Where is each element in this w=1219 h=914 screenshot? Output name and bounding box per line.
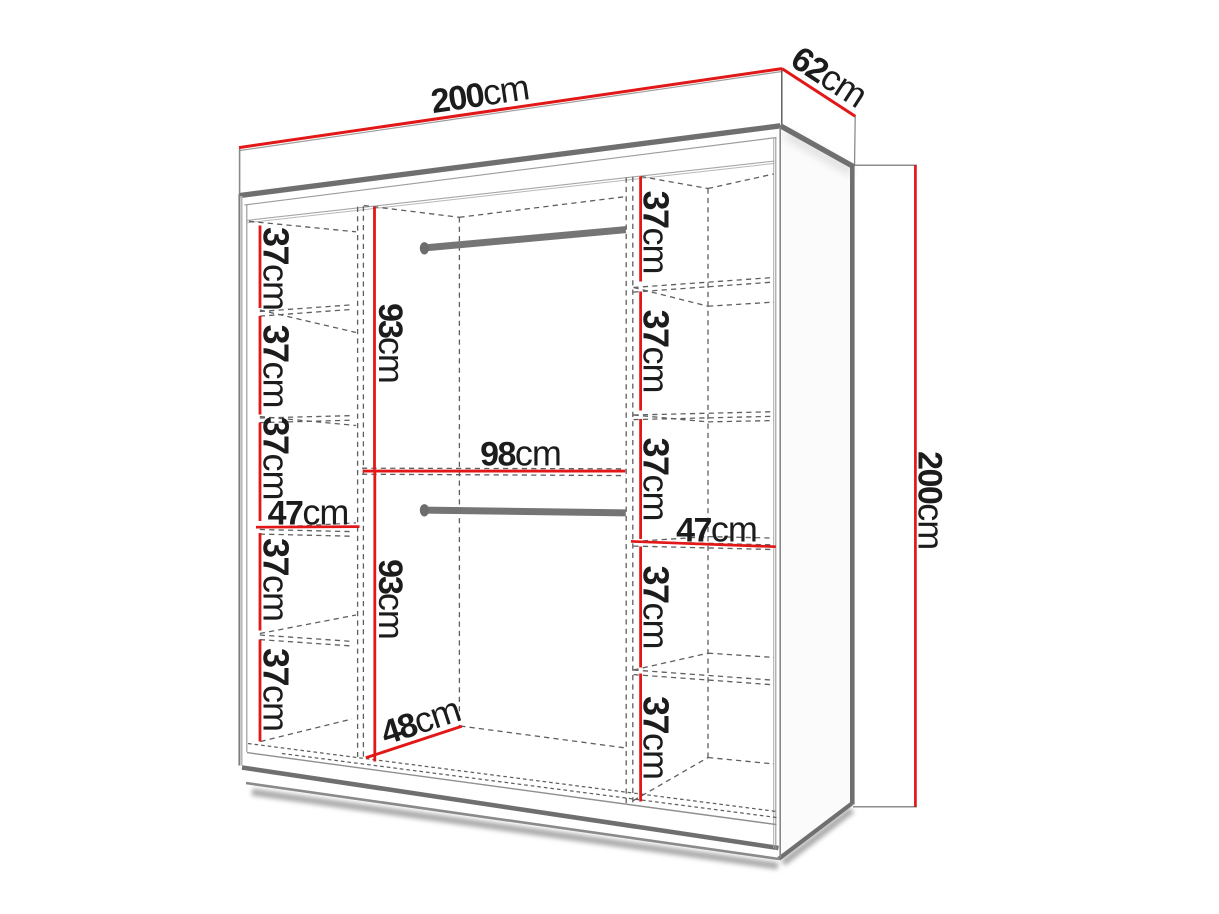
svg-text:47cm: 47cm [676, 509, 757, 550]
svg-text:93cm: 93cm [371, 559, 412, 639]
svg-text:37cm: 37cm [255, 648, 296, 731]
svg-text:37cm: 37cm [255, 416, 296, 499]
svg-text:37cm: 37cm [255, 538, 296, 621]
svg-text:37cm: 37cm [635, 696, 676, 779]
svg-text:200cm: 200cm [910, 451, 951, 549]
svg-text:37cm: 37cm [635, 565, 676, 648]
svg-text:37cm: 37cm [255, 324, 296, 407]
svg-text:98cm: 98cm [480, 433, 561, 474]
svg-text:37cm: 37cm [635, 437, 676, 520]
svg-text:93cm: 93cm [371, 303, 412, 383]
svg-text:37cm: 37cm [635, 190, 676, 273]
svg-text:37cm: 37cm [255, 227, 296, 310]
svg-text:37cm: 37cm [635, 309, 676, 392]
